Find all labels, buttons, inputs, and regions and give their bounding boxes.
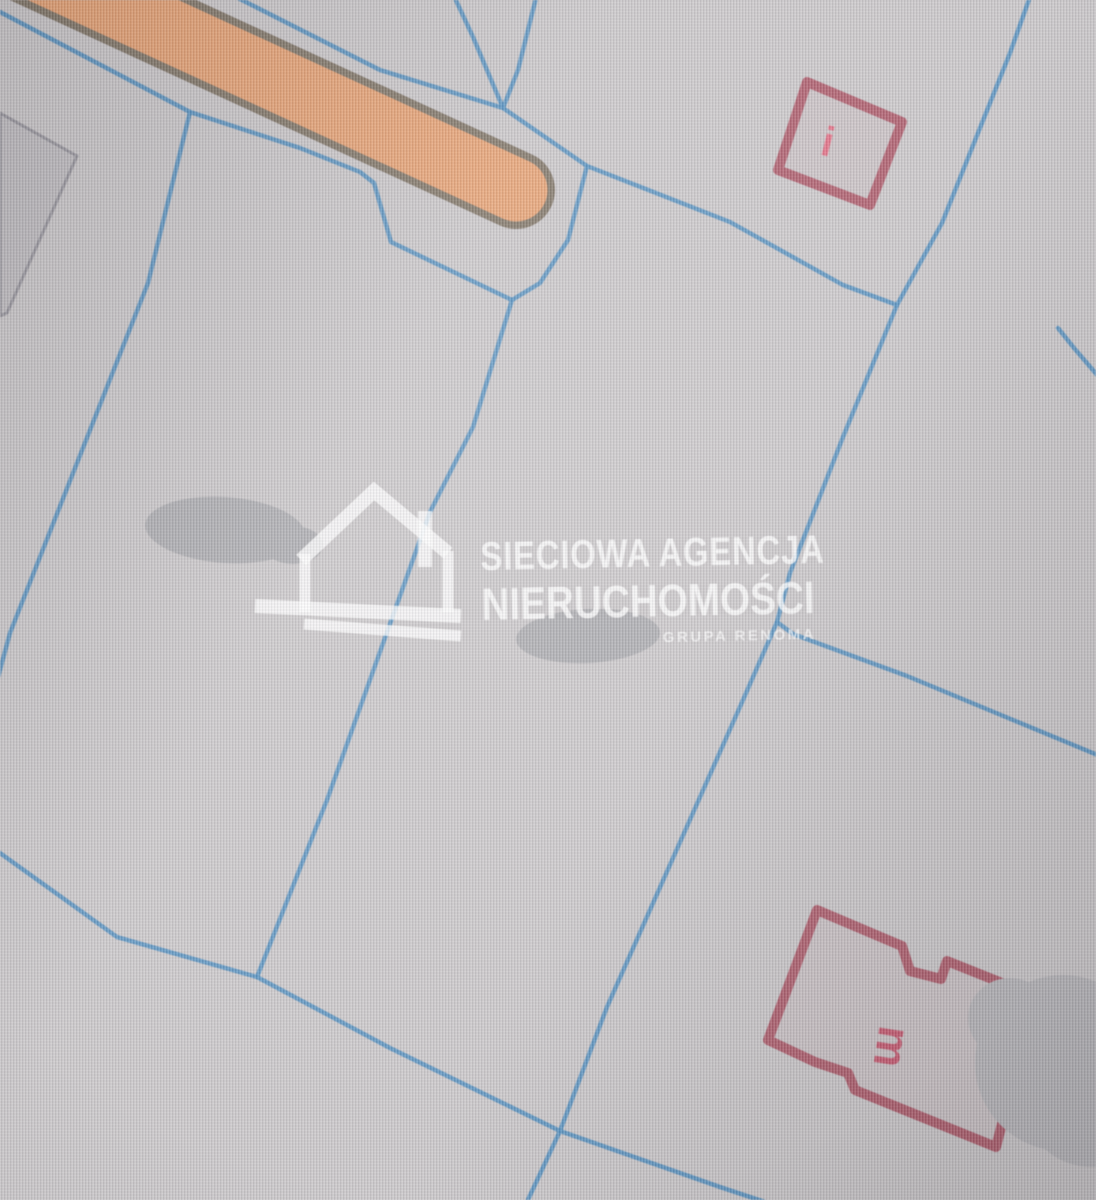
redaction-blob-bottom-right-3 <box>968 978 1052 1058</box>
map-canvas <box>0 0 1096 1200</box>
gray-parcel-shape <box>0 113 77 316</box>
cadastral-map-photo[interactable]: i m SIECIOWA AGENCJA NIERUCHOMOŚCI GRUPA… <box>0 0 1096 1200</box>
road-shape <box>0 0 516 190</box>
redaction-blob-center <box>515 605 662 666</box>
building-outline-i <box>778 82 902 205</box>
